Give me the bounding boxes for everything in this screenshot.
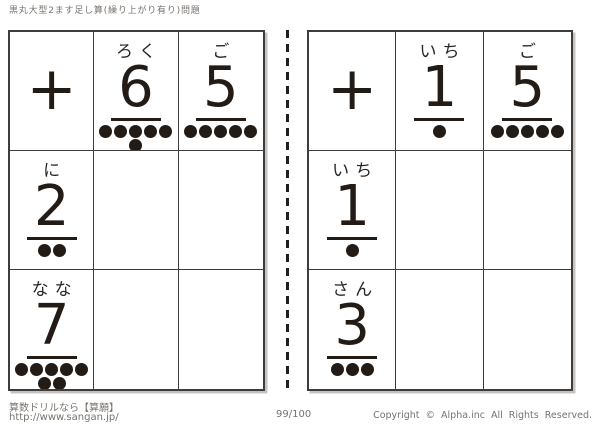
count-dot bbox=[491, 125, 504, 138]
row-header-cell: に2 bbox=[10, 151, 94, 270]
dot-row bbox=[331, 363, 374, 376]
count-dot bbox=[159, 125, 172, 138]
dot-row bbox=[38, 244, 66, 257]
count-dot bbox=[346, 244, 359, 257]
digit-value: 1 bbox=[414, 61, 464, 121]
row-header-cell: いち1 bbox=[309, 151, 396, 270]
count-dot bbox=[99, 125, 112, 138]
plus-sign: + bbox=[327, 59, 377, 119]
dot-row bbox=[15, 363, 88, 376]
count-dot bbox=[506, 125, 519, 138]
digit-value: 3 bbox=[327, 299, 377, 359]
digit-value: 5 bbox=[196, 61, 246, 121]
answer-cell bbox=[396, 151, 483, 270]
plus-sign: + bbox=[27, 59, 77, 119]
answer-cell bbox=[484, 151, 571, 270]
count-dot bbox=[361, 363, 374, 376]
column-header-cell: ろく6 bbox=[94, 32, 178, 151]
page-number: 99/100 bbox=[276, 409, 311, 420]
answer-cell bbox=[396, 270, 483, 389]
row-header-cell: なな7 bbox=[10, 270, 94, 389]
dot-group bbox=[346, 244, 359, 257]
dot-row bbox=[433, 125, 446, 138]
dot-row bbox=[99, 125, 172, 138]
digit-value: 7 bbox=[27, 299, 77, 359]
number-card: なな7 bbox=[15, 270, 88, 389]
dot-group bbox=[99, 125, 172, 151]
dot-row bbox=[184, 125, 257, 138]
count-dot bbox=[331, 363, 344, 376]
digit-value: 6 bbox=[111, 61, 161, 121]
count-dot bbox=[53, 377, 66, 389]
addition-table-left: +ろく6ご5に2なな7 bbox=[8, 30, 265, 391]
number-card: に2 bbox=[27, 151, 77, 257]
count-dot bbox=[129, 139, 142, 151]
operator-cell: + bbox=[10, 32, 94, 151]
number-card: いち1 bbox=[326, 151, 378, 257]
number-card: ろく6 bbox=[99, 32, 172, 151]
count-dot bbox=[229, 125, 242, 138]
dot-row bbox=[346, 244, 359, 257]
number-card: ご5 bbox=[184, 32, 257, 138]
digit-value: 2 bbox=[27, 180, 77, 240]
number-card: いち1 bbox=[413, 32, 465, 138]
column-header-cell: いち1 bbox=[396, 32, 483, 151]
count-dot bbox=[45, 363, 58, 376]
dot-group bbox=[331, 363, 374, 376]
dot-group bbox=[491, 125, 564, 138]
site-url: http://www.sangan.jp/ bbox=[9, 412, 119, 423]
dot-row bbox=[38, 377, 66, 389]
count-dot bbox=[114, 125, 127, 138]
answer-cell bbox=[484, 270, 571, 389]
dot-group bbox=[433, 125, 446, 138]
answer-cell bbox=[94, 151, 178, 270]
count-dot bbox=[38, 244, 51, 257]
row-header-cell: さん3 bbox=[309, 270, 396, 389]
count-dot bbox=[536, 125, 549, 138]
count-dot bbox=[244, 125, 257, 138]
dot-group bbox=[15, 363, 88, 389]
addition-table-right: +いち1ご5いち1さん3 bbox=[307, 30, 573, 391]
dot-row bbox=[491, 125, 564, 138]
answer-cell bbox=[179, 270, 263, 389]
count-dot bbox=[551, 125, 564, 138]
answer-cell bbox=[179, 151, 263, 270]
count-dot bbox=[38, 377, 51, 389]
count-dot bbox=[53, 244, 66, 257]
count-dot bbox=[433, 125, 446, 138]
digit-value: 1 bbox=[327, 180, 377, 240]
column-header-cell: ご5 bbox=[179, 32, 263, 151]
count-dot bbox=[199, 125, 212, 138]
count-dot bbox=[144, 125, 157, 138]
count-dot bbox=[15, 363, 28, 376]
dot-row bbox=[129, 139, 142, 151]
dashed-divider bbox=[286, 30, 289, 391]
count-dot bbox=[129, 125, 142, 138]
count-dot bbox=[346, 363, 359, 376]
count-dot bbox=[75, 363, 88, 376]
answer-cell bbox=[94, 270, 178, 389]
number-card: さん3 bbox=[326, 270, 378, 376]
count-dot bbox=[60, 363, 73, 376]
digit-value: 5 bbox=[502, 61, 552, 121]
operator-cell: + bbox=[309, 32, 396, 151]
dot-group bbox=[38, 244, 66, 257]
count-dot bbox=[214, 125, 227, 138]
page-title: 黒丸大型2ます足し算(繰り上がり有り)問題 bbox=[9, 3, 201, 16]
count-dot bbox=[521, 125, 534, 138]
copyright-notice: Copyright © Alpha.inc All Rights Reserve… bbox=[373, 410, 592, 421]
column-header-cell: ご5 bbox=[484, 32, 571, 151]
count-dot bbox=[30, 363, 43, 376]
number-card: ご5 bbox=[491, 32, 564, 138]
dot-group bbox=[184, 125, 257, 138]
count-dot bbox=[184, 125, 197, 138]
